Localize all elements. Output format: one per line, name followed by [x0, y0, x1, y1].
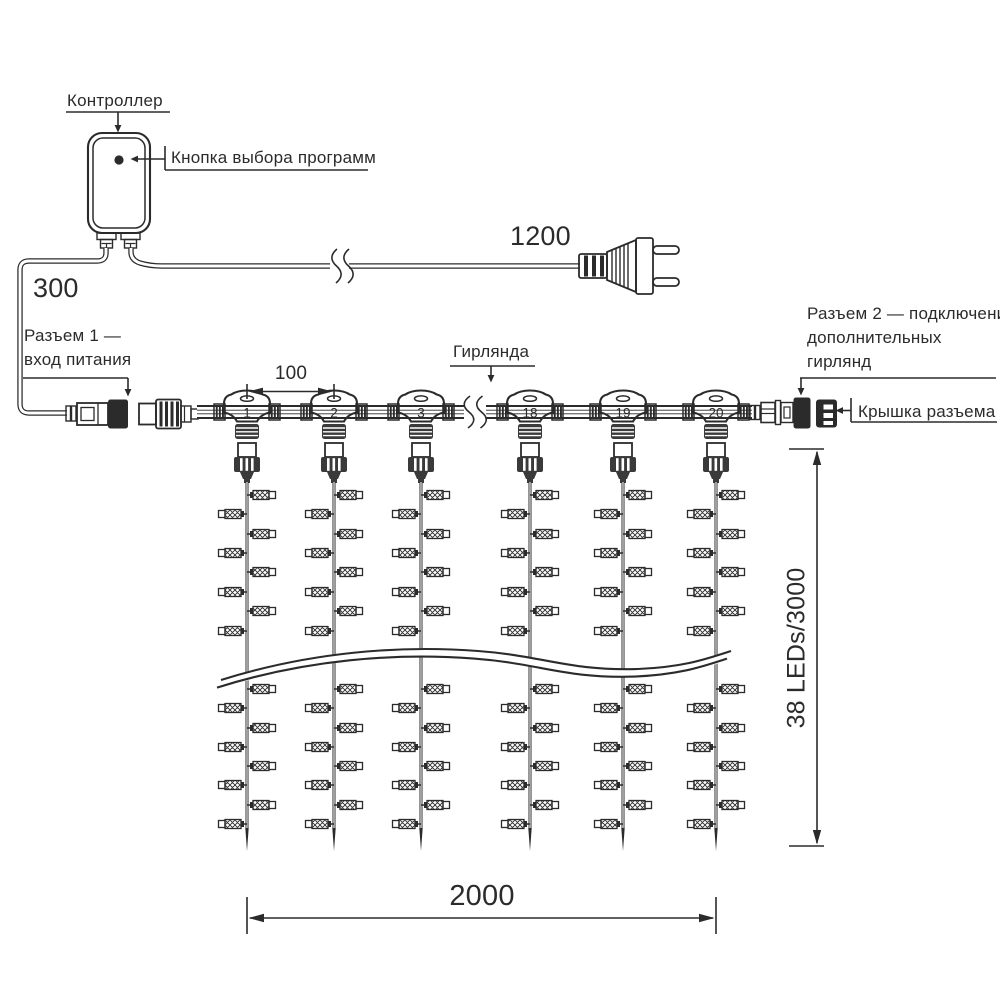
- led-lamp: [334, 568, 363, 577]
- led-lamp: [595, 820, 624, 829]
- wiring-artwork: 123181920: [0, 0, 1000, 1000]
- led-lamp: [623, 568, 652, 577]
- hanging-slot: [710, 396, 723, 401]
- led-lamp: [306, 549, 335, 558]
- led-lamp: [393, 627, 422, 636]
- led-lamp: [595, 549, 624, 558]
- led-lamp: [595, 781, 624, 790]
- string-tip: [714, 828, 717, 851]
- led-lamp: [393, 704, 422, 713]
- hanging-slot: [617, 396, 630, 401]
- led-lamp: [393, 820, 422, 829]
- led-lamp: [502, 588, 531, 597]
- led-lamp: [502, 820, 531, 829]
- led-lamp: [623, 491, 652, 500]
- led-lamp: [421, 685, 450, 694]
- led-lamp: [688, 627, 717, 636]
- string-tip: [621, 828, 624, 851]
- controller-label: Контроллер: [67, 89, 163, 113]
- led-lamp: [716, 762, 745, 771]
- plug-prong: [653, 246, 679, 254]
- led-lamp: [421, 568, 450, 577]
- curtain-width-dimension: 2000: [449, 876, 514, 917]
- led-lamp: [688, 510, 717, 519]
- drop-spacing-dimension: 100: [275, 361, 307, 388]
- led-lamp: [502, 704, 531, 713]
- led-lamp: [393, 549, 422, 558]
- string-tip: [245, 828, 248, 851]
- led-lamp: [716, 685, 745, 694]
- led-lamp: [306, 627, 335, 636]
- led-lamp: [421, 762, 450, 771]
- power-cable-dimension: 1200: [510, 217, 571, 255]
- led-lamp: [716, 724, 745, 733]
- led-lamp: [219, 627, 248, 636]
- string-tip: [332, 828, 335, 851]
- led-lamp: [306, 588, 335, 597]
- led-lamp: [530, 685, 559, 694]
- program-button-label: Кнопка выбора программ: [171, 146, 376, 170]
- lead-length-dimension: 300: [33, 269, 79, 307]
- led-lamp: [334, 491, 363, 500]
- cable-break-mark: [477, 396, 487, 428]
- connector2-label-line3: гирлянд: [807, 350, 1000, 374]
- led-lamp: [688, 549, 717, 558]
- led-lamp: [595, 588, 624, 597]
- led-lamp: [688, 743, 717, 752]
- led-lamp: [623, 530, 652, 539]
- garland-drop: 18: [497, 391, 563, 852]
- drop-number: 18: [522, 406, 537, 421]
- led-lamp: [219, 588, 248, 597]
- led-lamp: [716, 801, 745, 810]
- led-lamp: [623, 685, 652, 694]
- led-lamp: [219, 743, 248, 752]
- drop-number: 19: [615, 406, 630, 421]
- led-lamp: [530, 724, 559, 733]
- string-tip: [419, 828, 422, 851]
- led-lamp: [595, 704, 624, 713]
- led-lamp: [219, 820, 248, 829]
- led-lamp: [247, 762, 276, 771]
- led-lamp: [334, 530, 363, 539]
- led-lamp: [502, 743, 531, 752]
- hanging-slot: [524, 396, 537, 401]
- led-lamp: [530, 491, 559, 500]
- led-lamp: [247, 724, 276, 733]
- led-lamp: [502, 549, 531, 558]
- led-lamp: [716, 491, 745, 500]
- led-lamp: [393, 588, 422, 597]
- led-lamp: [393, 781, 422, 790]
- garland-drop: 19: [590, 391, 656, 852]
- led-lamp: [421, 530, 450, 539]
- drop-number: 20: [708, 406, 723, 421]
- connector1-label-line2: вход питания: [24, 348, 131, 372]
- cable-break-mark: [464, 396, 474, 428]
- led-lamp: [306, 781, 335, 790]
- drop-number: 2: [330, 406, 338, 421]
- led-lamp: [530, 530, 559, 539]
- led-lamp: [530, 801, 559, 810]
- connector2-extension: [750, 398, 811, 429]
- led-lamp: [502, 781, 531, 790]
- led-lamp: [688, 781, 717, 790]
- led-lamp: [623, 762, 652, 771]
- garland-label: Гирлянда: [453, 340, 529, 364]
- led-lamp: [530, 568, 559, 577]
- led-lamp: [334, 801, 363, 810]
- led-lamp: [716, 568, 745, 577]
- led-lamp: [595, 627, 624, 636]
- led-lamp: [623, 607, 652, 616]
- led-lamp: [688, 588, 717, 597]
- garland-drop: 2: [301, 391, 367, 852]
- connector2-label-line1: Разъем 2 — подключение: [807, 302, 1000, 326]
- led-lamp: [502, 627, 531, 636]
- led-lamp: [595, 743, 624, 752]
- string-tip: [528, 828, 531, 851]
- led-lamp: [247, 685, 276, 694]
- drop-number: 3: [417, 406, 425, 421]
- connector1-label: Разъем 1 — вход питания: [24, 324, 131, 372]
- garland-drop: 1: [214, 391, 280, 852]
- cable-break-mark: [332, 249, 341, 283]
- led-lamp: [306, 704, 335, 713]
- led-lamp: [421, 724, 450, 733]
- hanging-slot: [415, 396, 428, 401]
- led-curtain-diagram: 123181920: [0, 0, 1000, 1000]
- led-lamp: [247, 530, 276, 539]
- led-lamp: [219, 510, 248, 519]
- led-lamp: [334, 607, 363, 616]
- plug-prong: [653, 278, 679, 286]
- led-lamp: [623, 724, 652, 733]
- curtain-height-dimension: 38 LEDs/3000: [779, 568, 815, 729]
- led-lamp: [334, 762, 363, 771]
- led-lamp: [716, 530, 745, 539]
- led-lamp: [247, 568, 276, 577]
- controller-box: [88, 133, 150, 248]
- led-lamp: [247, 607, 276, 616]
- garland-drop: 3: [388, 391, 454, 852]
- connector-cap-label: Крышка разъема: [858, 400, 995, 424]
- garland-drop: 20: [683, 391, 749, 852]
- led-lamp: [334, 685, 363, 694]
- led-lamp: [421, 801, 450, 810]
- connector-cap: [816, 400, 837, 428]
- led-lamp: [247, 801, 276, 810]
- led-lamp: [334, 724, 363, 733]
- led-lamp: [219, 704, 248, 713]
- led-lamp: [306, 510, 335, 519]
- led-lamp: [688, 704, 717, 713]
- led-lamp: [623, 801, 652, 810]
- led-lamp: [393, 743, 422, 752]
- mains-plug: [579, 238, 679, 294]
- led-lamp: [595, 510, 624, 519]
- led-lamp: [716, 607, 745, 616]
- led-lamp: [688, 820, 717, 829]
- connector2-label: Разъем 2 — подключение дополнительных ги…: [807, 302, 1000, 374]
- led-lamp: [421, 491, 450, 500]
- led-lamp: [306, 743, 335, 752]
- led-lamp: [530, 607, 559, 616]
- led-lamp: [502, 510, 531, 519]
- led-lamp: [219, 549, 248, 558]
- led-lamp: [247, 491, 276, 500]
- drop-number: 1: [243, 406, 251, 421]
- connector1-power-input: [66, 400, 198, 429]
- led-lamp: [306, 820, 335, 829]
- led-lamp: [219, 781, 248, 790]
- led-lamp: [421, 607, 450, 616]
- led-lamp: [530, 762, 559, 771]
- program-select-button-dot: [114, 155, 123, 164]
- connector1-label-line1: Разъем 1 —: [24, 324, 131, 348]
- curtain-break-wave: [217, 649, 731, 688]
- connector2-label-line2: дополнительных: [807, 326, 1000, 350]
- led-lamp: [393, 510, 422, 519]
